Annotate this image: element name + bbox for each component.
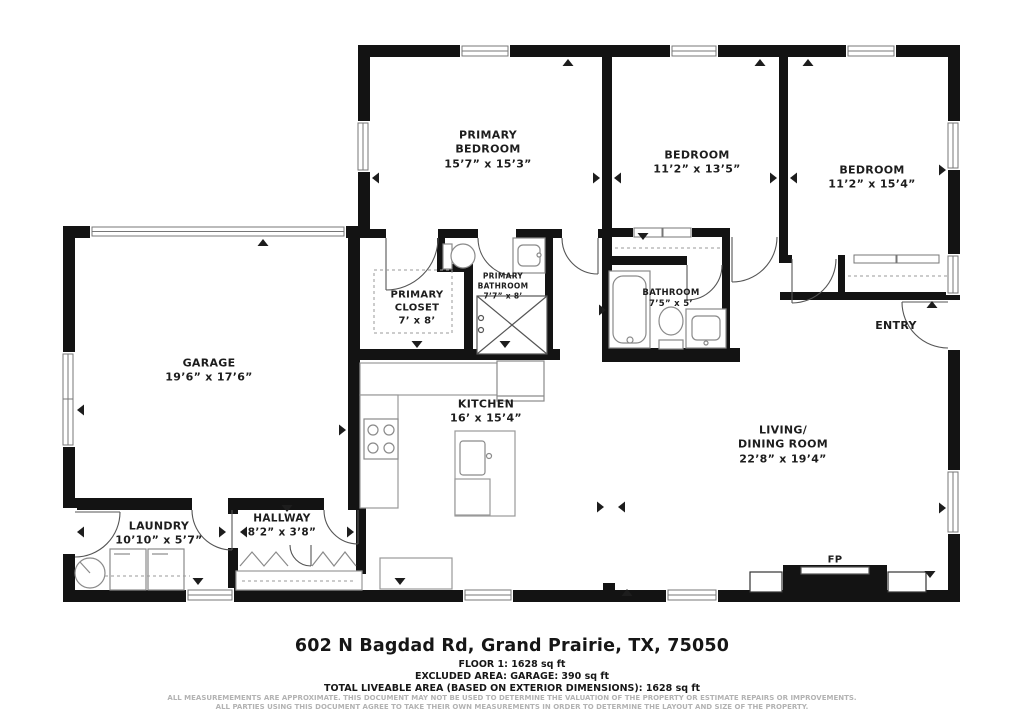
excluded-area-line: EXCLUDED AREA: GARAGE: 390 sq ft xyxy=(0,671,1024,682)
room-dims: 19’6” x 17’6” xyxy=(165,371,252,385)
room-dims: 22’8” x 19’4” xyxy=(738,452,828,466)
room-label-primary-bathroom: PRIMARY BATHROOM 7’7” x 8’ xyxy=(478,271,529,300)
dimension-arrow-icon xyxy=(939,165,946,176)
room-label-laundry: LAUNDRY 10’10” x 5’7” xyxy=(115,520,202,549)
wall-segment xyxy=(63,498,192,510)
room-name: PRIMARY CLOSET xyxy=(391,289,444,315)
dryer-icon xyxy=(148,549,184,590)
refrigerator-icon xyxy=(497,361,544,401)
dimension-arrow-icon xyxy=(597,502,604,513)
wall-segment xyxy=(232,498,324,510)
dimension-arrow-icon xyxy=(755,59,766,66)
room-label-fireplace: FP xyxy=(828,554,843,567)
wall-segment xyxy=(370,229,386,238)
room-dims: 11’2” x 13’5” xyxy=(653,163,740,177)
sink-icon xyxy=(513,238,545,273)
door-arc-icon xyxy=(324,510,358,544)
window-icon xyxy=(948,256,958,293)
wall-segment xyxy=(692,228,722,237)
kitchen-island-icon xyxy=(455,431,515,516)
room-dims: 8’2” x 3’8” xyxy=(248,526,316,540)
room-name: BEDROOM xyxy=(653,149,740,163)
room-name: GARAGE xyxy=(165,357,252,371)
room-name: LIVING/ DINING ROOM xyxy=(738,424,828,453)
room-name: LAUNDRY xyxy=(115,520,202,534)
room-label-garage: GARAGE 19’6” x 17’6” xyxy=(165,357,252,386)
room-dims: 10’10” x 5’7” xyxy=(115,534,202,548)
wall-segment xyxy=(602,348,740,362)
room-label-primary-closet: PRIMARY CLOSET 7’ x 8’ xyxy=(391,289,444,328)
dimension-arrow-icon xyxy=(77,527,84,538)
dimension-arrow-icon xyxy=(412,341,423,348)
wall-segment xyxy=(602,228,633,237)
room-label-bedroom-2: BEDROOM 11’2” x 15’4” xyxy=(828,164,915,193)
wall-segment xyxy=(516,229,562,238)
room-name: BEDROOM xyxy=(828,164,915,178)
room-name: HALLWAY xyxy=(248,512,316,526)
room-dims: 16’ x 15’4” xyxy=(450,412,522,426)
window-icon xyxy=(358,123,368,170)
door-arc-icon xyxy=(732,237,777,282)
room-label-bedroom-1: BEDROOM 11’2” x 13’5” xyxy=(653,149,740,178)
wall-segment xyxy=(228,498,238,514)
room-dims: 7’5” x 5’ xyxy=(642,299,699,310)
room-name: FP xyxy=(828,554,843,567)
disclaimer-text: ALL MEASUREMEMENTS ARE APPROXIMATE. THIS… xyxy=(0,694,1024,713)
dimension-arrow-icon xyxy=(372,173,379,184)
toilet-icon xyxy=(659,307,683,349)
room-dims: 7’ x 8’ xyxy=(391,315,444,328)
dimension-arrow-icon xyxy=(618,502,625,513)
dimension-arrow-icon xyxy=(790,173,797,184)
room-label-bathroom: BATHROOM 7’5” x 5’ xyxy=(642,288,699,310)
window-icon xyxy=(465,590,511,600)
sideboard-furniture xyxy=(380,558,452,589)
wall-segment xyxy=(779,52,788,263)
wall-segment xyxy=(464,264,473,356)
dimension-arrow-icon xyxy=(939,503,946,514)
bifold-door-icon xyxy=(240,552,288,566)
window-icon xyxy=(462,46,508,56)
window-icon xyxy=(848,46,894,56)
dimension-arrow-icon xyxy=(193,578,204,585)
room-label-hallway: HALLWAY 8’2” x 3’8” xyxy=(248,512,316,539)
property-address: 602 N Bagdad Rd, Grand Prairie, TX, 7505… xyxy=(0,636,1024,656)
door-arc-icon xyxy=(478,238,516,276)
room-label-entry: ENTRY xyxy=(875,319,917,333)
door-arc-icon xyxy=(290,545,311,566)
disclaimer-line-2: ALL PARTIES USING THIS DOCUMENT AGREE TO… xyxy=(0,703,1024,712)
wall-segment xyxy=(348,232,360,510)
dimension-arrow-icon xyxy=(803,59,814,66)
window-icon xyxy=(668,590,716,600)
window-icon xyxy=(948,472,958,532)
shower-icon xyxy=(477,296,547,354)
room-label-kitchen: KITCHEN 16’ x 15’4” xyxy=(450,398,522,427)
door-arc-icon xyxy=(562,238,598,274)
room-dims: 11’2” x 15’4” xyxy=(828,178,915,192)
door-arc-icon xyxy=(386,238,438,290)
dimension-arrow-icon xyxy=(347,527,354,538)
door-opening xyxy=(61,508,77,554)
sink-icon xyxy=(686,309,726,348)
window-icon xyxy=(63,354,73,445)
room-dims: 15’7” x 15’3” xyxy=(444,157,531,171)
dimension-arrow-icon xyxy=(563,59,574,66)
bifold-door-icon xyxy=(312,552,356,566)
floor-plan-drawing xyxy=(0,0,1024,724)
dimension-arrow-icon xyxy=(240,527,247,538)
dimension-arrow-icon xyxy=(770,173,777,184)
wall-segment xyxy=(779,255,792,263)
garage-door-icon xyxy=(92,227,344,236)
window-icon xyxy=(672,46,716,56)
wall-segment xyxy=(438,229,478,238)
wall-segment xyxy=(602,256,687,265)
dimension-arrow-icon xyxy=(77,405,84,416)
toilet-icon xyxy=(443,244,475,269)
disclaimer-line-1: ALL MEASUREMEMENTS ARE APPROXIMATE. THIS… xyxy=(0,694,1024,703)
window-icon xyxy=(948,123,958,168)
room-name: BATHROOM xyxy=(642,288,699,299)
dimension-arrow-icon xyxy=(219,527,226,538)
dimension-arrow-icon xyxy=(614,173,621,184)
wall-segment xyxy=(780,292,958,300)
dimension-arrow-icon xyxy=(258,239,269,246)
room-name: ENTRY xyxy=(875,319,917,333)
room-name: PRIMARY BATHROOM xyxy=(478,271,529,291)
washer-icon xyxy=(110,549,146,590)
fireplace-icon xyxy=(750,565,926,592)
room-dims: 7’7” x 8’ xyxy=(478,291,529,301)
dimension-arrow-icon xyxy=(593,173,600,184)
room-name: KITCHEN xyxy=(450,398,522,412)
wall-segment xyxy=(602,52,612,232)
total-area-line: TOTAL LIVEABLE AREA (BASED ON EXTERIOR D… xyxy=(0,683,1024,694)
stove-icon xyxy=(364,419,398,459)
room-label-primary-bedroom: PRIMARY BEDROOM 15’7” x 15’3” xyxy=(444,129,531,172)
water-heater-icon xyxy=(75,558,105,588)
dimension-arrow-icon xyxy=(339,425,346,436)
sliding-closet-door-icon xyxy=(854,255,939,263)
window-icon xyxy=(188,590,232,600)
wall-segment xyxy=(603,583,615,592)
floor-area-line: FLOOR 1: 1628 sq ft xyxy=(0,659,1024,670)
room-name: PRIMARY BEDROOM xyxy=(444,129,531,158)
room-label-living-dining: LIVING/ DINING ROOM 22’8” x 19’4” xyxy=(738,424,828,467)
entry-door-opening xyxy=(946,300,962,350)
